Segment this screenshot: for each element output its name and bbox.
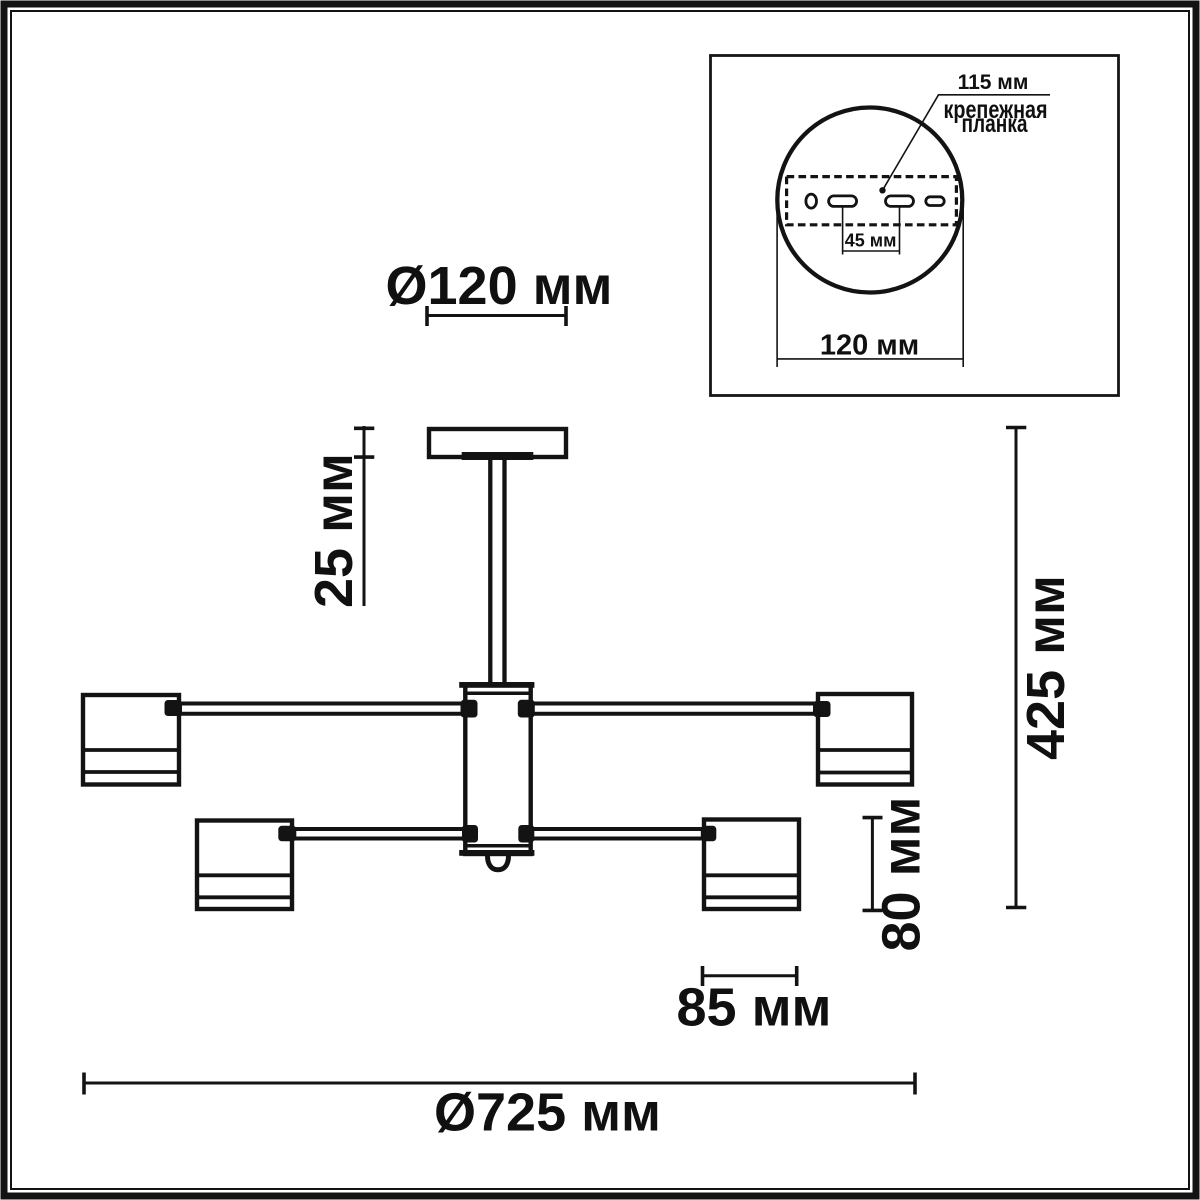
svg-text:Ø120 мм: Ø120 мм — [386, 256, 613, 316]
svg-text:120 мм: 120 мм — [820, 330, 919, 362]
svg-text:115 мм: 115 мм — [958, 71, 1029, 94]
svg-text:Ø725 мм: Ø725 мм — [434, 1083, 661, 1143]
svg-text:425 мм: 425 мм — [1016, 575, 1076, 760]
svg-text:45 мм: 45 мм — [845, 231, 897, 251]
svg-text:25 мм: 25 мм — [304, 453, 364, 608]
svg-text:планка: планка — [962, 110, 1029, 138]
svg-text:80 мм: 80 мм — [872, 797, 932, 952]
svg-text:85 мм: 85 мм — [677, 978, 832, 1038]
